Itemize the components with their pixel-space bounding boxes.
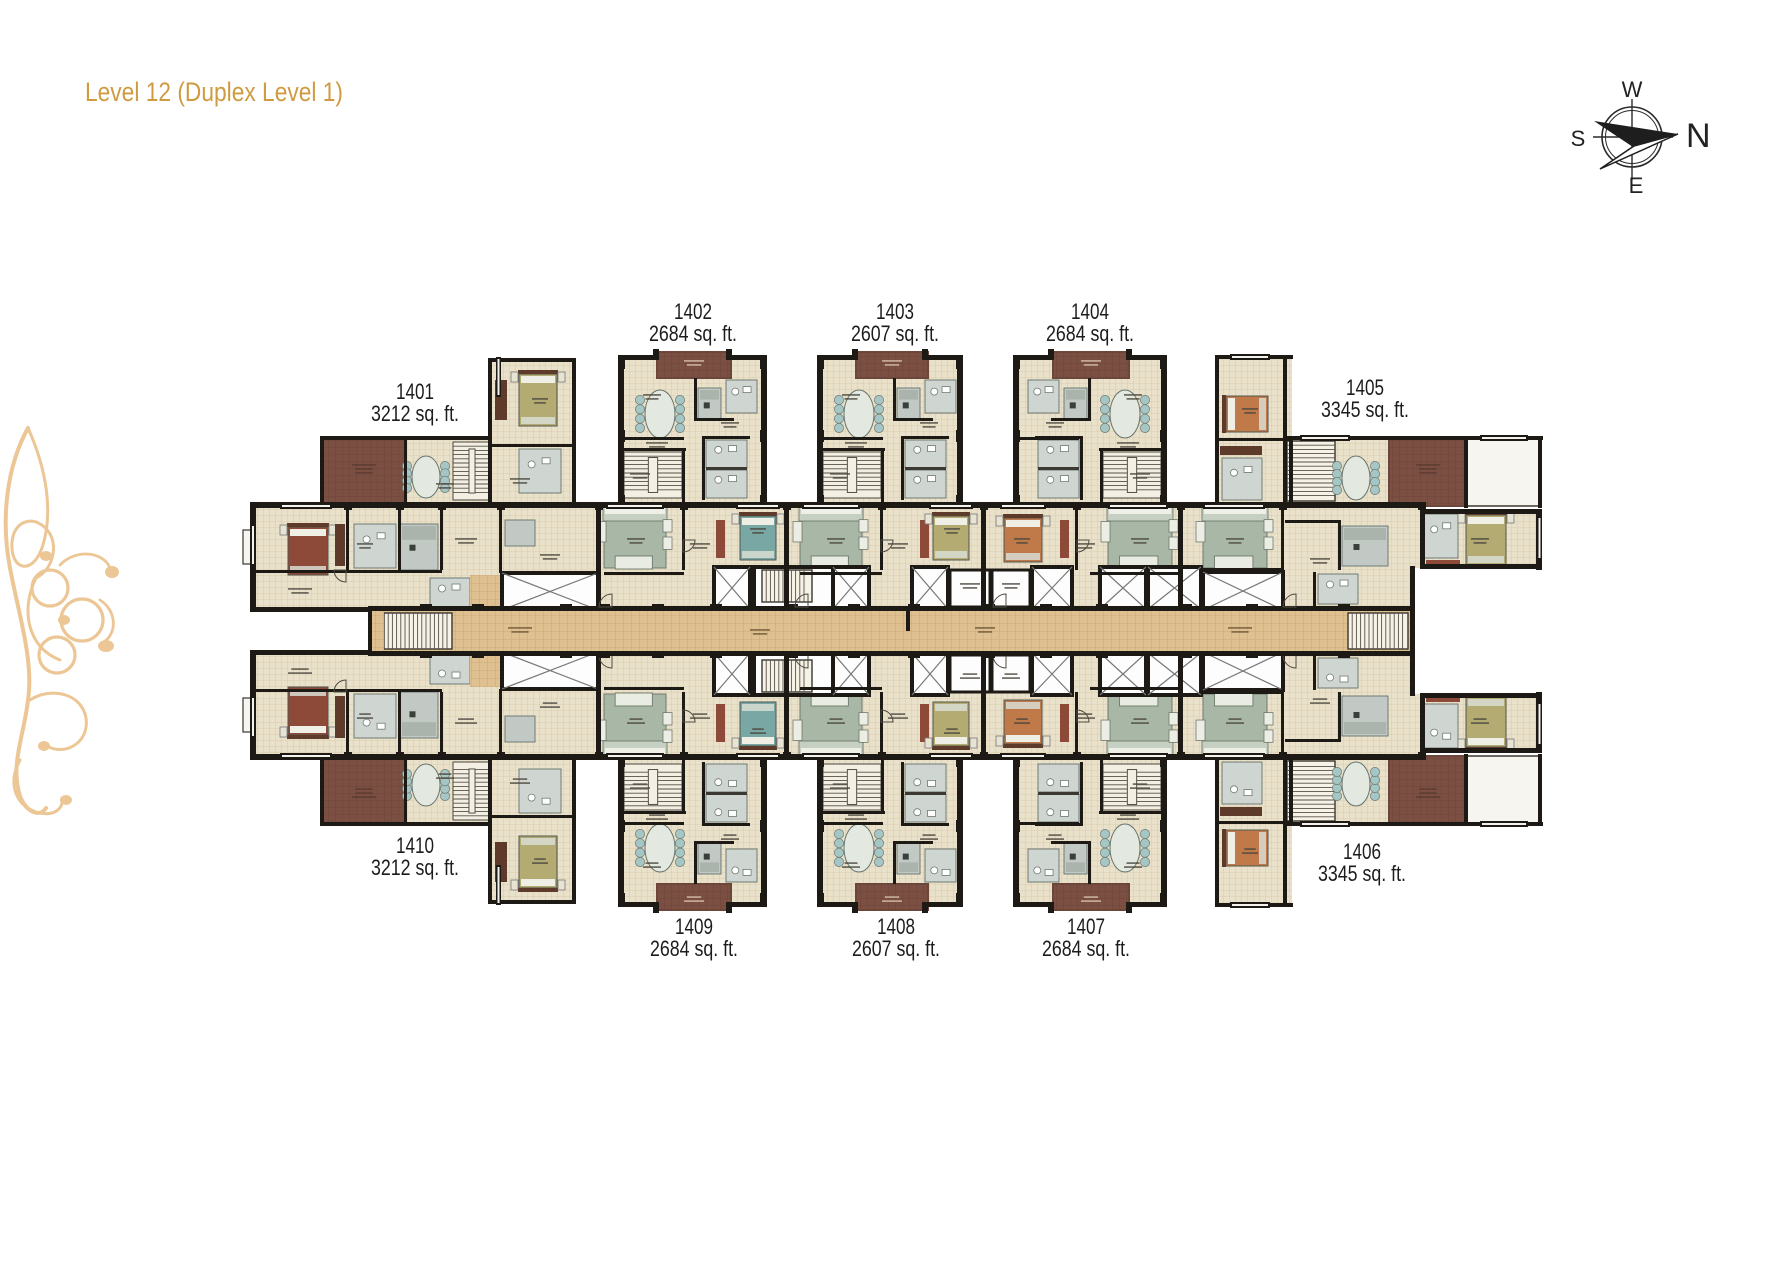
svg-text:2684 sq. ft.: 2684 sq. ft. — [1046, 321, 1134, 346]
svg-text:2684 sq. ft.: 2684 sq. ft. — [1042, 936, 1130, 961]
svg-text:E: E — [1629, 173, 1644, 198]
svg-text:2607 sq. ft.: 2607 sq. ft. — [851, 321, 939, 346]
svg-text:N: N — [1686, 117, 1711, 155]
svg-text:3212 sq. ft.: 3212 sq. ft. — [371, 855, 459, 880]
svg-text:2684 sq. ft.: 2684 sq. ft. — [649, 321, 737, 346]
svg-text:3212 sq. ft.: 3212 sq. ft. — [371, 401, 459, 426]
svg-text:2684 sq. ft.: 2684 sq. ft. — [650, 936, 738, 961]
svg-text:3345 sq. ft.: 3345 sq. ft. — [1321, 397, 1409, 422]
svg-text:2607 sq. ft.: 2607 sq. ft. — [852, 936, 940, 961]
svg-text:W: W — [1622, 77, 1643, 102]
svg-text:S: S — [1571, 126, 1586, 151]
svg-text:3345 sq. ft.: 3345 sq. ft. — [1318, 861, 1406, 886]
svg-text:Level 12 (Duplex Level 1): Level 12 (Duplex Level 1) — [85, 77, 343, 107]
